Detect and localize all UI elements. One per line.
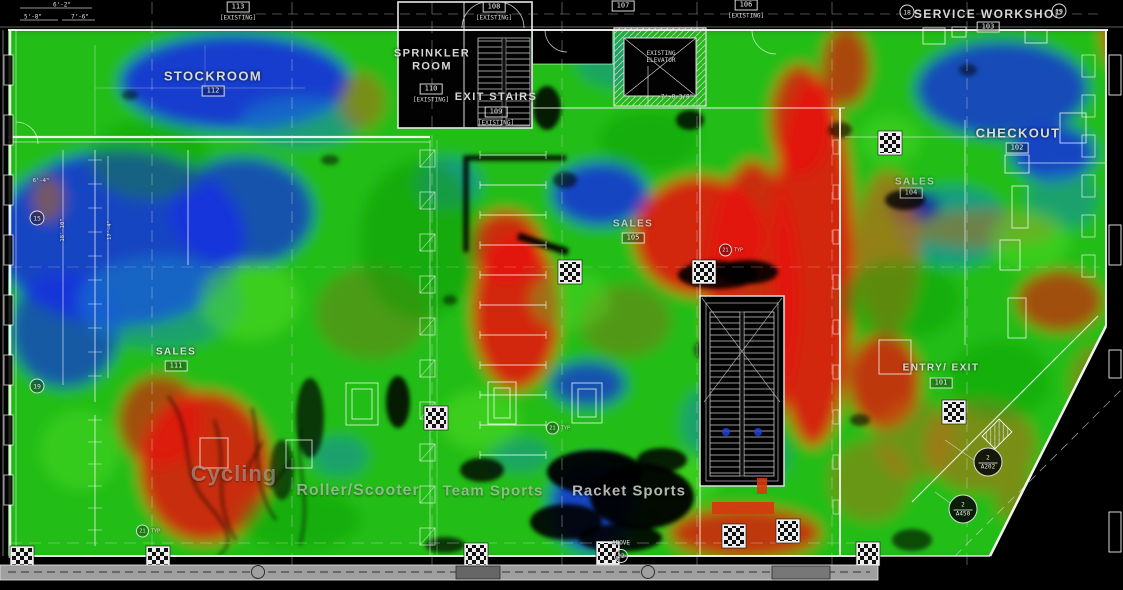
sales-left-label: SALES — [156, 347, 196, 358]
typ-marker: 21 TYP — [719, 244, 743, 257]
service-workshop-label: SERVICE WORKSHOP — [914, 7, 1064, 21]
detail-callout-a450: 2 A450 — [949, 495, 978, 524]
sprinkler-room-number: 110 — [420, 84, 443, 95]
sales-center-label: SALES — [613, 219, 653, 230]
sales-right-label: SALES — [895, 177, 935, 188]
checkout-label: CHECKOUT — [976, 126, 1061, 141]
scan-target-icon — [558, 260, 582, 284]
door-tag-108-status: [EXISTING] — [476, 15, 512, 22]
grid-bubble: 19 — [1052, 4, 1067, 19]
door-tag-108-number: 108 — [483, 2, 506, 13]
above-note: ABOVE — [612, 540, 630, 547]
service-workshop-number: 103 — [977, 22, 1000, 33]
scan-target-icon — [722, 524, 746, 548]
checkout-number: 102 — [1006, 143, 1029, 154]
exit-stairs-number: 109 — [485, 107, 508, 118]
stockroom-label: STOCKROOM — [164, 69, 262, 84]
typ-marker: 21 TYP — [546, 422, 570, 435]
escalator — [700, 296, 784, 514]
dept-racket-label: Racket Sports — [572, 483, 686, 500]
elevator-label: EXISTING ELEVATOR — [637, 51, 685, 65]
dept-team-label: Team Sports — [443, 483, 544, 500]
scan-target-icon — [878, 131, 902, 155]
floor-plan: STOCKROOM 112 SPRINKLER ROOM 110 [EXISTI… — [0, 0, 1123, 590]
dimension-text: 6'-2" — [53, 2, 71, 9]
typ-number: 21 — [546, 422, 559, 435]
dept-cycling-label: Cycling — [191, 461, 277, 487]
scan-target-icon — [692, 260, 716, 284]
typ-text: TYP — [734, 247, 743, 253]
dimension-text: 6'-4" — [33, 178, 50, 184]
grid-bubble: 18 — [900, 5, 915, 20]
scan-target-icon — [776, 519, 800, 543]
dept-roller-label: Roller/Scooter — [296, 482, 419, 500]
callout-sheet-number: A202 — [981, 463, 995, 470]
dimension-text: 7'-8 3/8" — [661, 94, 694, 101]
typ-text: TYP — [561, 425, 570, 431]
typ-text: TYP — [151, 528, 160, 534]
exit-stairs-status: [EXISTING] — [478, 120, 514, 127]
dimension-text: 18'-10" — [60, 218, 66, 241]
entry-exit-label: ENTRY/ EXIT — [903, 363, 980, 374]
dimension-text: 7'-6" — [71, 14, 89, 21]
sales-left-number: 111 — [165, 361, 188, 372]
typ-number: 21 — [719, 244, 732, 257]
sales-right-number: 104 — [900, 188, 923, 199]
scan-target-icon — [942, 400, 966, 424]
above-bubble: 22 — [614, 549, 628, 563]
typ-marker: 21 TYP — [136, 525, 160, 538]
sprinkler-room-label: SPRINKLER ROOM — [393, 47, 471, 72]
exit-stairs-label: EXIT STAIRS — [455, 91, 537, 103]
callout-sheet-number: A450 — [956, 510, 970, 517]
scan-target-icon — [464, 543, 488, 567]
callout-detail-number: 2 — [954, 501, 973, 510]
scan-target-icon — [856, 542, 880, 566]
grid-bubble: 15 — [30, 211, 45, 226]
callout-detail-number: 2 — [979, 454, 998, 463]
door-tag-106-status: [EXISTING] — [728, 13, 764, 20]
typ-number: 21 — [136, 525, 149, 538]
stockroom-number: 112 — [202, 86, 225, 97]
sprinkler-room-status: [EXISTING] — [413, 97, 449, 104]
scan-target-icon — [424, 406, 448, 430]
detail-callout-a202: 2 A202 — [974, 448, 1003, 477]
door-tag-113-number: 113 — [227, 2, 250, 13]
sales-center-number: 105 — [622, 233, 645, 244]
dimension-text: 17'-4" — [107, 220, 113, 240]
dimension-text: 5'-8" — [24, 14, 42, 21]
grid-bubble: 19 — [30, 379, 45, 394]
door-tag-113-status: [EXISTING] — [220, 15, 256, 22]
entry-exit-number: 101 — [930, 378, 953, 389]
door-tag-106-number: 106 — [735, 0, 758, 11]
door-tag-107-number: 107 — [612, 1, 635, 12]
bottom-wall-band — [0, 565, 878, 580]
